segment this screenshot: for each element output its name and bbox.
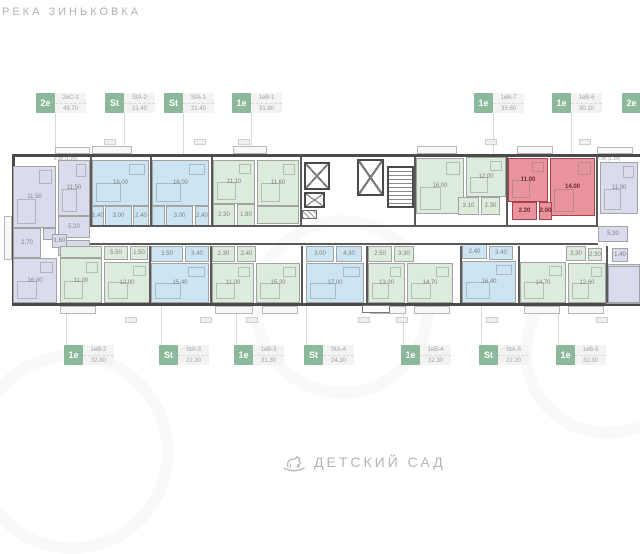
unit-code: StA-4 bbox=[323, 346, 354, 356]
room: 2.40 bbox=[195, 206, 209, 226]
unit-code: 1еВ-5 bbox=[575, 346, 606, 356]
floorplan-page: { "header": { "location_label": "РЕКА ЗИ… bbox=[0, 0, 640, 480]
room-area-label: 4.30 bbox=[343, 251, 355, 257]
unit-info-box: StA-322.30 bbox=[178, 345, 209, 365]
unit-area: 24.30 bbox=[323, 356, 354, 365]
wall-separator bbox=[366, 246, 368, 303]
wall-separator bbox=[506, 157, 508, 226]
elevator-shaft-icon bbox=[357, 159, 384, 196]
room-area-label: 5.30 bbox=[607, 231, 619, 237]
unit-type-badge: 1е bbox=[556, 345, 575, 365]
balcony bbox=[262, 306, 298, 314]
staircase-icon bbox=[387, 166, 414, 208]
corridor-wall bbox=[90, 225, 598, 227]
room: 1.40 bbox=[92, 206, 104, 226]
room: 2.50 bbox=[368, 246, 392, 262]
room-area-label: 11.50 bbox=[67, 185, 82, 191]
unit-code: 1еВ-3 bbox=[253, 346, 284, 356]
unit-info-box: StA-121.40 bbox=[183, 93, 214, 113]
unit-area: 22.20 bbox=[498, 356, 529, 365]
balcony-tag bbox=[238, 139, 250, 145]
room-area-label: 12.60 bbox=[579, 280, 594, 286]
unit-type-badge: 1е bbox=[234, 345, 253, 365]
unit-label-1еВ-3[interactable]: 1е1еВ-331.30 bbox=[234, 345, 284, 365]
unit-info-box: 2еС-149.70 bbox=[55, 93, 86, 113]
balcony bbox=[517, 146, 553, 154]
room: 1.80 bbox=[237, 204, 255, 226]
unit-code: 1еВ-2 bbox=[83, 346, 114, 356]
unit-label-1еВ-1[interactable]: 1е1еВ-131.80 bbox=[232, 93, 282, 113]
unit-type-badge: 1е bbox=[64, 345, 83, 365]
room-area-label: 3.10 bbox=[463, 203, 475, 209]
unit-code: StA-3 bbox=[178, 346, 209, 356]
unit-area: 32.30 bbox=[575, 356, 606, 365]
room: 12.00 bbox=[104, 262, 150, 303]
unit-info-box: 1еВ-131.80 bbox=[251, 93, 282, 113]
balcony-tag bbox=[486, 317, 498, 323]
room: 11.50 bbox=[13, 166, 56, 228]
room-area-label: 16.00 bbox=[27, 278, 42, 284]
unit-code: 1еВ-7 bbox=[493, 94, 524, 104]
room: 16.00 bbox=[13, 258, 57, 303]
balcony bbox=[417, 146, 457, 154]
unit-area: 21.40 bbox=[183, 104, 214, 113]
unit-info-box: 1еВ-232.80 bbox=[83, 345, 114, 365]
room: 1.40 bbox=[612, 248, 628, 262]
room bbox=[60, 246, 102, 258]
balcony-tag bbox=[396, 317, 408, 323]
room-area-label: 1.40 bbox=[92, 213, 104, 219]
room: 14.70 bbox=[520, 262, 566, 303]
unit-label-2е[interactable]: 2е bbox=[622, 93, 640, 113]
room: 17.00 bbox=[306, 263, 364, 303]
room-area-label: 17.00 bbox=[327, 280, 342, 286]
unit-type-badge: St bbox=[479, 345, 498, 365]
room: 13.00 bbox=[368, 263, 405, 303]
room: 2.70 bbox=[13, 228, 41, 258]
corridor-wall bbox=[90, 243, 598, 245]
room-area-label: 15.20 bbox=[270, 280, 285, 286]
selected-apartment-room[interactable]: 2.00 bbox=[539, 202, 552, 220]
room: 14.70 bbox=[407, 263, 453, 303]
room: 11.60 bbox=[257, 160, 299, 206]
room-area-label: 3.40 bbox=[191, 251, 203, 257]
room: 3.00 bbox=[306, 246, 334, 262]
shaft-hatch-icon bbox=[302, 210, 317, 219]
room-area-label: 14.70 bbox=[422, 280, 437, 286]
kindergarten-label: ДЕТСКИЙ САД bbox=[314, 454, 446, 470]
unit-leader-line bbox=[493, 113, 494, 154]
unit-leader-line bbox=[183, 113, 184, 154]
room: 2.30 bbox=[213, 204, 235, 226]
unit-code: StA-2 bbox=[124, 94, 155, 104]
wall-separator bbox=[460, 246, 462, 303]
unit-area: 33.60 bbox=[493, 104, 524, 113]
room bbox=[608, 266, 640, 303]
room: 11.10 bbox=[213, 160, 255, 204]
room-area-label: 14.00 bbox=[565, 184, 580, 190]
unit-info-box: 1еВ-532.30 bbox=[575, 345, 606, 365]
room: 3.40 bbox=[185, 246, 209, 262]
unit-leader-line bbox=[481, 306, 482, 345]
unit-info-box: StA-221.40 bbox=[124, 93, 155, 113]
unit-label-StA-3[interactable]: StStA-322.30 bbox=[159, 345, 209, 365]
balcony bbox=[4, 216, 12, 260]
balcony bbox=[60, 306, 96, 314]
room-area-label: 11.50 bbox=[27, 194, 42, 200]
room: 16.00 bbox=[152, 160, 209, 206]
balcony bbox=[92, 146, 132, 154]
room bbox=[152, 206, 165, 226]
unit-area: 32.80 bbox=[83, 356, 114, 365]
unit-type-badge: 1е bbox=[552, 93, 571, 113]
balcony-size-note: 2.30 (1.20) bbox=[597, 157, 620, 162]
room-area-label: 1.80 bbox=[240, 212, 252, 218]
unit-info-box: StA-522.20 bbox=[498, 345, 529, 365]
room-area-label: 3.00 bbox=[314, 251, 326, 257]
unit-leader-line bbox=[571, 113, 572, 154]
unit-code: 1еВ-4 bbox=[420, 346, 451, 356]
wall-separator bbox=[149, 246, 151, 303]
unit-code: 1еВ-1 bbox=[251, 94, 282, 104]
kindergarten-caption: ДЕТСКИЙ САД bbox=[281, 451, 446, 473]
room-area-label: 15.40 bbox=[172, 280, 187, 286]
room: 16.40 bbox=[462, 261, 516, 303]
unit-area: 31.30 bbox=[253, 356, 284, 365]
wall-separator bbox=[90, 157, 92, 226]
room-area-label: 2.30 bbox=[589, 252, 601, 258]
unit-label-1еВ-5[interactable]: 1е1еВ-532.30 bbox=[556, 345, 606, 365]
room-area-label: 11.60 bbox=[271, 180, 286, 186]
unit-type-badge: 1е bbox=[232, 93, 251, 113]
room-area-label: 14.70 bbox=[535, 280, 550, 286]
room-area-label: 13.00 bbox=[379, 280, 394, 286]
unit-label-1еВ-4[interactable]: 1е1еВ-432.30 bbox=[401, 345, 451, 365]
balcony bbox=[597, 147, 633, 154]
balcony-tag bbox=[246, 317, 258, 323]
balcony-tag bbox=[596, 317, 608, 323]
room-area-label: 2.40 bbox=[241, 251, 253, 257]
room-area-label: 16.00 bbox=[113, 180, 128, 186]
room: 11.50 bbox=[58, 160, 90, 216]
wall-separator bbox=[210, 246, 212, 303]
room: 11.00 bbox=[60, 258, 102, 303]
room: 3.00 bbox=[105, 206, 132, 226]
room-area-label: 11.00 bbox=[226, 280, 241, 286]
room: 3.50 bbox=[151, 246, 183, 262]
room bbox=[257, 206, 299, 224]
room-area-label: 3.50 bbox=[161, 251, 173, 257]
room: 3.30 bbox=[394, 246, 414, 262]
unit-type-badge: 1е bbox=[401, 345, 420, 365]
wall-separator bbox=[596, 157, 598, 226]
room: 11.00 bbox=[600, 162, 638, 214]
unit-area: 31.80 bbox=[251, 104, 282, 113]
room-area-label: 2.70 bbox=[21, 240, 33, 246]
unit-area: 22.30 bbox=[178, 356, 209, 365]
unit-info-box: 1еВ-733.60 bbox=[493, 93, 524, 113]
unit-area: 30.10 bbox=[571, 104, 602, 113]
room-area-label: 5.50 bbox=[110, 250, 122, 256]
room-area-label: 11.00 bbox=[74, 278, 89, 284]
room: 3.10 bbox=[458, 197, 479, 215]
room: 5.30 bbox=[598, 226, 628, 242]
room: 15.20 bbox=[256, 263, 300, 303]
unit-area: 49.70 bbox=[55, 104, 86, 113]
room-area-label: 3.40 bbox=[495, 250, 507, 256]
room: 11.00 bbox=[212, 263, 254, 303]
unit-label-StA-5[interactable]: StStA-522.20 bbox=[479, 345, 529, 365]
room-area-label: 2.50 bbox=[374, 251, 386, 257]
room: 15.40 bbox=[151, 263, 209, 303]
unit-label-StA-1[interactable]: StStA-121.40 bbox=[164, 93, 214, 113]
balcony bbox=[215, 306, 253, 314]
unit-label-2еС-1[interactable]: 2е2еС-149.70 bbox=[36, 93, 86, 113]
room-area-label: 2.20 bbox=[519, 208, 531, 214]
room: 1.50 bbox=[130, 246, 148, 260]
unit-code: StA-5 bbox=[498, 346, 529, 356]
balcony bbox=[524, 306, 560, 314]
unit-code: 2еС-1 bbox=[55, 94, 86, 104]
room: 2.40 bbox=[237, 246, 256, 262]
room-area-label: 3.00 bbox=[113, 213, 125, 219]
unit-label-1еВ-2[interactable]: 1е1еВ-232.80 bbox=[64, 345, 114, 365]
balcony bbox=[233, 146, 267, 154]
room: 16.00 bbox=[92, 160, 149, 206]
elevator-shaft-icon bbox=[304, 162, 330, 190]
unit-type-badge: St bbox=[105, 93, 124, 113]
balcony-tag bbox=[125, 317, 137, 323]
unit-type-badge: St bbox=[164, 93, 183, 113]
wall-separator bbox=[211, 157, 213, 226]
room-area-label: 16.00 bbox=[432, 183, 447, 189]
selected-apartment-room[interactable]: 14.00 bbox=[550, 158, 595, 216]
room-area-label: 12.00 bbox=[119, 280, 134, 286]
room: 2.30 bbox=[588, 248, 602, 261]
room: 3.00 bbox=[166, 206, 193, 226]
balcony-tag bbox=[358, 317, 370, 323]
unit-label-1еВ-6-selected[interactable]: 1е1еВ-630.10 bbox=[552, 93, 602, 113]
room: 2.40 bbox=[462, 244, 487, 259]
unit-info-box: StA-424.30 bbox=[323, 345, 354, 365]
room: 2.30 bbox=[481, 197, 500, 215]
balcony-size-note: 2.30 (1.20) bbox=[54, 157, 77, 162]
entrance-porch bbox=[362, 305, 390, 313]
room-area-label: 2.40 bbox=[196, 213, 208, 219]
balcony-tag bbox=[194, 139, 206, 145]
room-area-label: 2.30 bbox=[485, 203, 497, 209]
unit-area: 32.30 bbox=[420, 356, 451, 365]
room-area-label: 3.30 bbox=[570, 251, 582, 257]
room: 2.30 bbox=[212, 246, 235, 262]
rocking-horse-icon bbox=[281, 451, 307, 473]
room-area-label: 2.30 bbox=[218, 212, 230, 218]
balcony-tag bbox=[104, 139, 116, 145]
elevator-shaft-icon bbox=[304, 192, 325, 208]
wall-separator bbox=[606, 246, 608, 303]
unit-label-1еВ-7[interactable]: 1е1еВ-733.60 bbox=[474, 93, 524, 113]
room-area-label: 3.30 bbox=[398, 251, 410, 257]
unit-type-badge: St bbox=[159, 345, 178, 365]
room-area-label: 1.60 bbox=[54, 238, 66, 244]
room-area-label: 2.40 bbox=[135, 213, 147, 219]
unit-leader-line bbox=[161, 306, 162, 345]
unit-info-box: 1еВ-432.30 bbox=[420, 345, 451, 365]
unit-area: 21.40 bbox=[124, 104, 155, 113]
room-area-label: 1.40 bbox=[614, 252, 626, 258]
room: 12.60 bbox=[568, 263, 606, 303]
unit-code: StA-1 bbox=[183, 94, 214, 104]
watermark-circle bbox=[0, 350, 174, 554]
balcony bbox=[568, 306, 604, 314]
unit-type-badge: 2е bbox=[622, 93, 640, 113]
selected-apartment-room[interactable]: 11.00 bbox=[508, 158, 548, 202]
room: 3.40 bbox=[489, 246, 513, 260]
room-area-label: 2.30 bbox=[218, 251, 230, 257]
room-area-label: 3.00 bbox=[174, 213, 186, 219]
unit-info-box: 1еВ-331.30 bbox=[253, 345, 284, 365]
room: 12.00 bbox=[466, 157, 506, 197]
room: 2.40 bbox=[133, 206, 149, 226]
room: 5.50 bbox=[104, 246, 128, 260]
room-area-label: 11.00 bbox=[521, 177, 536, 183]
room-area-label: 5.20 bbox=[68, 224, 80, 230]
room-area-label: 11.00 bbox=[612, 185, 627, 191]
room-area-label: 2.00 bbox=[540, 208, 552, 214]
unit-info-box: 1еВ-630.10 bbox=[571, 93, 602, 113]
wall-separator bbox=[301, 246, 303, 303]
room-area-label: 11.10 bbox=[227, 179, 242, 185]
balcony-tag bbox=[200, 317, 212, 323]
selected-apartment-room[interactable]: 2.20 bbox=[512, 202, 537, 220]
balcony bbox=[414, 306, 450, 314]
unit-code: 1еВ-6 bbox=[571, 94, 602, 104]
room-area-label: 12.00 bbox=[478, 174, 493, 180]
unit-type-badge: St bbox=[304, 345, 323, 365]
balcony bbox=[55, 147, 90, 154]
unit-type-badge: 2е bbox=[36, 93, 55, 113]
balcony-tag bbox=[579, 139, 591, 145]
room: 3.30 bbox=[566, 246, 586, 261]
unit-label-StA-2[interactable]: StStA-221.40 bbox=[105, 93, 155, 113]
wall-separator bbox=[518, 246, 520, 303]
room-area-label: 2.40 bbox=[469, 249, 481, 255]
room-area-label: 1.50 bbox=[133, 250, 145, 256]
wall-separator bbox=[150, 157, 152, 226]
wall-separator bbox=[414, 157, 416, 226]
balcony-tag bbox=[485, 139, 497, 145]
room-area-label: 16.00 bbox=[173, 180, 188, 186]
location-caption: РЕКА ЗИНЬКОВКА bbox=[2, 6, 141, 18]
room: 4.30 bbox=[336, 246, 362, 262]
room: 16.00 bbox=[416, 158, 464, 214]
unit-label-StA-4[interactable]: StStA-424.30 bbox=[304, 345, 354, 365]
room-area-label: 16.40 bbox=[481, 279, 496, 285]
unit-type-badge: 1е bbox=[474, 93, 493, 113]
